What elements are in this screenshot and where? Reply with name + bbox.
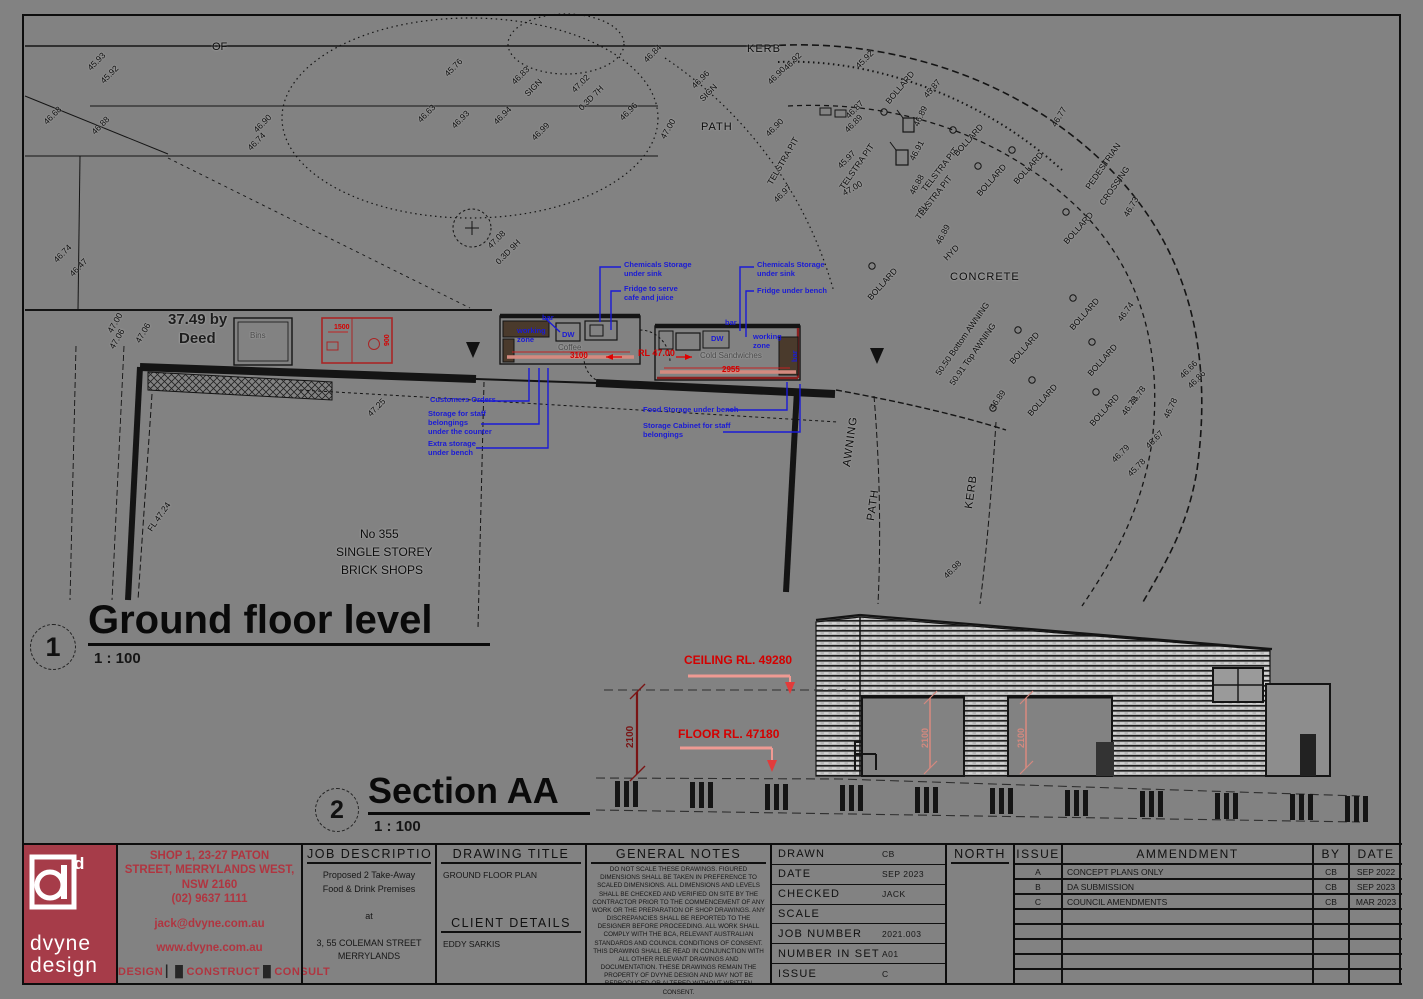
drawing-sheet: { "sheet": { "background": "#828282", "v…	[0, 0, 1423, 989]
sheet-border	[22, 14, 1401, 985]
sheet: OF45.9345.9246.6846.8846.9046.7446.7446.…	[0, 0, 1423, 989]
